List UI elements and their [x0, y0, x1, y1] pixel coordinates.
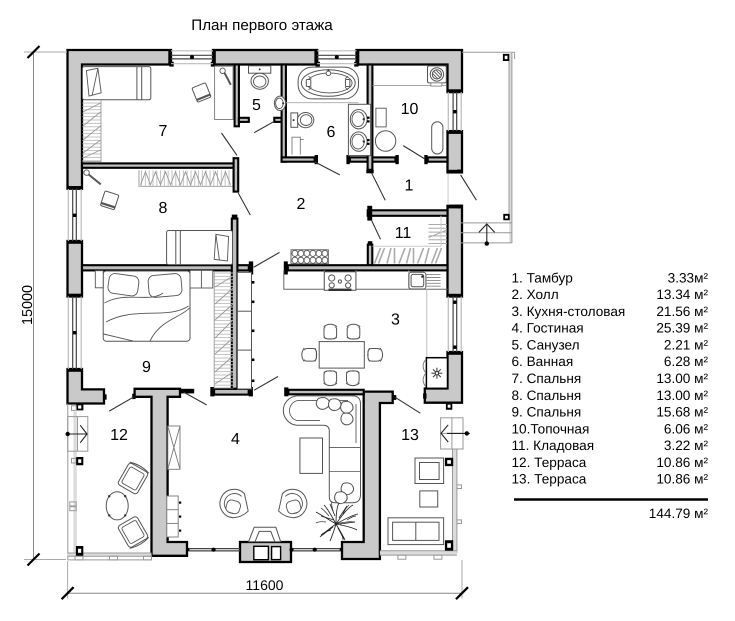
svg-text:2: 2 [297, 196, 306, 213]
svg-text:6: 6 [327, 124, 336, 141]
svg-text:11. Кладовая: 11. Кладовая [512, 438, 595, 453]
svg-text:5: 5 [252, 97, 261, 114]
svg-text:10.Топочная: 10.Топочная [512, 421, 590, 436]
svg-text:3.33м²: 3.33м² [668, 270, 709, 285]
svg-text:7: 7 [159, 123, 168, 140]
svg-text:5. Санузел: 5. Санузел [512, 337, 580, 352]
svg-text:144.79 м²: 144.79 м² [649, 506, 709, 521]
svg-text:2. Холл: 2. Холл [512, 287, 559, 302]
svg-text:4: 4 [231, 431, 240, 448]
svg-text:13.34 м²: 13.34 м² [656, 287, 708, 302]
svg-text:13.00 м²: 13.00 м² [656, 371, 708, 386]
svg-text:12: 12 [110, 427, 128, 444]
svg-text:3. Кухня-столовая: 3. Кухня-столовая [512, 304, 626, 319]
svg-text:15000: 15000 [20, 285, 36, 325]
svg-text:10.86 м²: 10.86 м² [656, 455, 708, 470]
svg-text:15.68 м²: 15.68 м² [656, 405, 708, 420]
svg-text:9: 9 [142, 359, 151, 376]
svg-text:3.22 м²: 3.22 м² [664, 438, 709, 453]
svg-text:25.39 м²: 25.39 м² [656, 321, 708, 336]
svg-text:13.00 м²: 13.00 м² [656, 388, 708, 403]
svg-text:1. Тамбур: 1. Тамбур [512, 270, 573, 285]
svg-text:21.56 м²: 21.56 м² [656, 304, 708, 319]
svg-text:7. Спальня: 7. Спальня [512, 371, 582, 386]
svg-text:11600: 11600 [246, 577, 284, 593]
svg-text:6.06 м²: 6.06 м² [664, 421, 709, 436]
svg-text:9. Спальня: 9. Спальня [512, 405, 582, 420]
svg-text:10: 10 [401, 101, 419, 118]
svg-text:1: 1 [405, 178, 414, 195]
svg-text:План первого этажа: План первого этажа [191, 17, 333, 34]
svg-text:6. Ванная: 6. Ванная [512, 354, 574, 369]
svg-text:8. Спальня: 8. Спальня [512, 388, 582, 403]
svg-text:3: 3 [391, 312, 400, 329]
svg-text:13: 13 [401, 427, 419, 444]
svg-text:2.21 м²: 2.21 м² [664, 337, 709, 352]
svg-text:10.86 м²: 10.86 м² [656, 472, 708, 487]
svg-text:8: 8 [159, 200, 168, 217]
svg-text:12. Терраса: 12. Терраса [512, 455, 587, 470]
svg-text:11: 11 [395, 225, 412, 242]
svg-text:13. Терраса: 13. Терраса [512, 472, 587, 487]
svg-text:6.28 м²: 6.28 м² [664, 354, 709, 369]
svg-text:4. Гостиная: 4. Гостиная [512, 321, 584, 336]
